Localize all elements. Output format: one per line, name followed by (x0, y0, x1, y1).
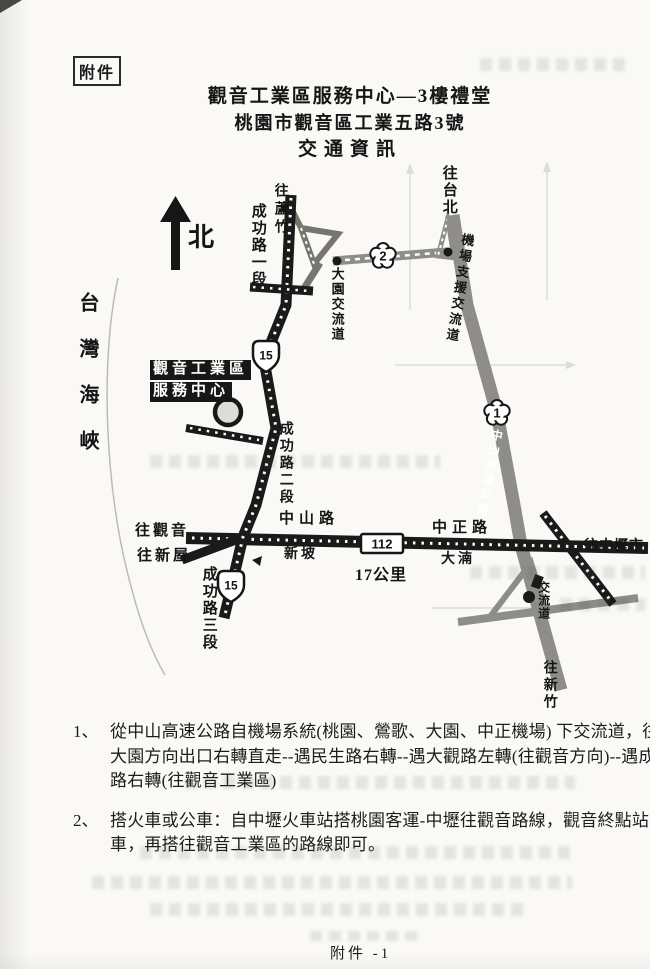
distance-label: 17公里 (355, 568, 407, 585)
diagonal-road (543, 513, 613, 604)
direction-text-line: 車，再搭往觀音工業區的路線即可。 (110, 833, 650, 858)
north-arrow-icon (160, 196, 191, 270)
scanned-document-page: 附件 觀音工業區服務中心—3樓禮堂 桃園市觀音區工業五路3號 交通資訊 (0, 0, 650, 969)
taiwan-strait-label: 台灣海峽 (76, 292, 97, 476)
route-badge-112: 112 (361, 534, 403, 553)
bleedthrough-artifact (480, 58, 630, 71)
chenggong-sec1-label: 成功路一段 (249, 203, 265, 288)
service-center-label-line2: 服務中心 (150, 382, 232, 402)
to-zhongli-label: 往中壢市 (584, 540, 644, 555)
page-footer-label: 附件 -1 (330, 942, 391, 963)
route-badge-2: 2 (370, 243, 395, 268)
svg-text:15: 15 (259, 349, 273, 363)
service-center-label-line1: 觀音工業區 (150, 360, 251, 380)
direction-text-line: 路右轉(往觀音工業區) (110, 769, 650, 794)
chenggong-sec2-label: 成功路二段 (277, 421, 292, 506)
bleedthrough-artifact (310, 931, 420, 941)
junction-dot (444, 248, 453, 257)
north-label: 北 (188, 224, 214, 251)
interchange-dot (523, 591, 535, 603)
scan-corner-artifact (0, 0, 22, 13)
zhongzheng-rd-label: 中正路 (432, 521, 492, 537)
zhongshan-rd-label: 中山路 (279, 512, 339, 528)
bleedthrough-artifact (92, 876, 572, 889)
title-traffic-info: 交通資訊 (40, 140, 650, 160)
title-venue: 觀音工業區服務中心—3樓禮堂 (40, 87, 650, 107)
zhongshan-zhongzheng-road (186, 538, 648, 548)
route-badge-15: 15 (253, 341, 279, 372)
bleedthrough-artifact (150, 903, 530, 916)
xinpo-pointer (252, 556, 262, 566)
title-address: 桃園市觀音區工業五路3號 (40, 114, 650, 133)
direction-item-2: 2、 搭火車或公車：自中壢火車站搭桃園客運-中壢往觀音路線，觀音終點站下 車，再… (73, 809, 629, 858)
to-guanyin-label: 往觀音 (135, 524, 189, 540)
danan-label: 大湳 (441, 553, 475, 568)
svg-text:2: 2 (379, 249, 386, 264)
attachment-label-box: 附件 (73, 56, 121, 86)
direction-text-line: 搭火車或公車：自中壢火車站搭桃園客運-中壢往觀音路線，觀音終點站下 (110, 809, 650, 834)
to-hsinchu-label: 往新竹 (541, 660, 556, 711)
dayuan-interchange-label: 大園交流道 (330, 267, 344, 342)
to-luzhu-label: 往蘆竹 (272, 183, 287, 237)
to-taipei-label: 往台北 (440, 165, 456, 216)
direction-text-line: 從中山高速公路自機場系統(桃園、鶯歌、大園、中正機場) 下交流道，往 (110, 720, 650, 745)
to-xinwu-label: 往新屋 (137, 549, 191, 565)
service-center-access-road (186, 428, 263, 441)
svg-text:112: 112 (372, 537, 393, 552)
coastline (107, 278, 165, 675)
direction-number: 1、 (73, 720, 110, 794)
service-center-marker (215, 399, 241, 425)
direction-text-line: 大園方向出口右轉直走--遇民生路右轉--遇大觀路左轉(往觀音方向)--遇成功 (110, 745, 650, 770)
svg-text:1: 1 (493, 406, 500, 421)
direction-number: 2、 (73, 809, 110, 858)
chenggong-sec3-label: 成功路三段 (200, 566, 216, 651)
xinpo-label: 新坡 (284, 548, 318, 563)
attachment-label: 附件 (79, 59, 115, 83)
interchange-label: 交流道 (537, 581, 550, 620)
svg-text:15: 15 (224, 579, 238, 593)
junction-dot (333, 257, 342, 266)
directions-section: 1、 從中山高速公路自機場系統(桃園、鶯歌、大園、中正機場) 下交流道，往 大園… (73, 720, 629, 873)
direction-item-1: 1、 從中山高速公路自機場系統(桃園、鶯歌、大園、中正機場) 下交流道，往 大園… (73, 720, 629, 794)
route-badge-15: 15 (218, 571, 244, 602)
